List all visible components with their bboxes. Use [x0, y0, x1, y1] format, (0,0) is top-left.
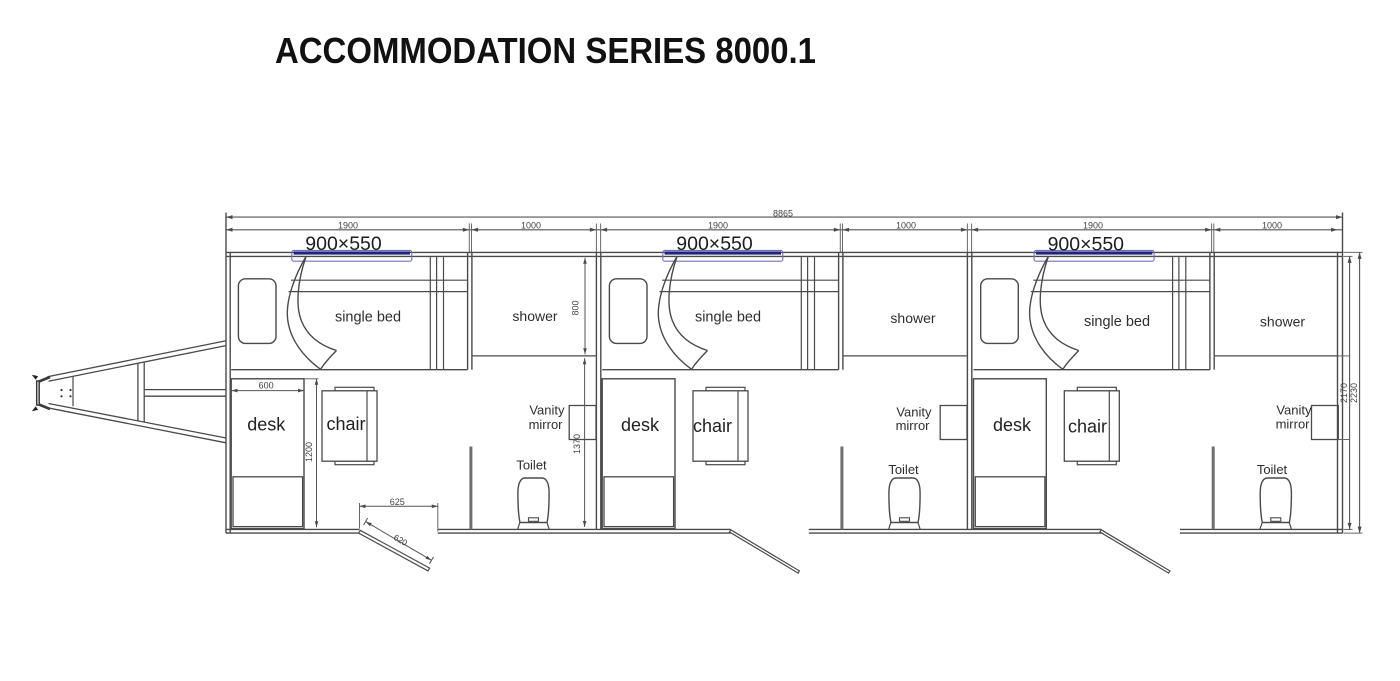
svg-text:mirror: mirror	[896, 418, 931, 433]
svg-text:chair: chair	[1068, 417, 1107, 437]
svg-text:1000: 1000	[521, 220, 541, 230]
svg-text:Toilet: Toilet	[888, 462, 919, 477]
svg-text:1000: 1000	[1262, 220, 1282, 230]
svg-text:Vanity: Vanity	[1276, 403, 1312, 418]
svg-text:ACCOMMODATION SERIES 8000.1: ACCOMMODATION SERIES 8000.1	[275, 30, 816, 71]
svg-text:Toilet: Toilet	[1257, 462, 1288, 477]
svg-text:1200: 1200	[304, 442, 314, 462]
svg-text:2170: 2170	[1339, 383, 1349, 403]
svg-text:1900: 1900	[1083, 220, 1103, 230]
svg-text:625: 625	[390, 497, 405, 507]
svg-text:mirror: mirror	[529, 417, 564, 432]
svg-text:desk: desk	[621, 415, 660, 435]
svg-text:shower: shower	[890, 310, 935, 326]
svg-text:single bed: single bed	[1084, 314, 1150, 330]
svg-text:single bed: single bed	[695, 309, 761, 325]
svg-text:chair: chair	[326, 414, 365, 434]
svg-text:shower: shower	[1260, 314, 1305, 330]
svg-text:900×550: 900×550	[1048, 233, 1125, 255]
svg-text:900×550: 900×550	[305, 233, 382, 255]
svg-text:desk: desk	[993, 415, 1032, 435]
svg-text:single bed: single bed	[335, 309, 401, 325]
svg-text:shower: shower	[512, 308, 557, 324]
svg-text:Toilet: Toilet	[516, 458, 547, 473]
svg-text:600: 600	[259, 381, 274, 391]
svg-text:1900: 1900	[338, 220, 358, 230]
svg-text:800: 800	[570, 300, 580, 315]
svg-text:8865: 8865	[773, 208, 793, 218]
svg-text:1900: 1900	[708, 220, 728, 230]
svg-text:2230: 2230	[1349, 383, 1359, 403]
svg-text:1000: 1000	[896, 220, 916, 230]
svg-text:Vanity: Vanity	[529, 402, 565, 417]
svg-text:mirror: mirror	[1276, 417, 1311, 432]
svg-text:1370: 1370	[572, 434, 582, 454]
svg-text:chair: chair	[693, 416, 732, 436]
svg-text:900×550: 900×550	[676, 233, 753, 255]
svg-text:desk: desk	[247, 415, 286, 435]
